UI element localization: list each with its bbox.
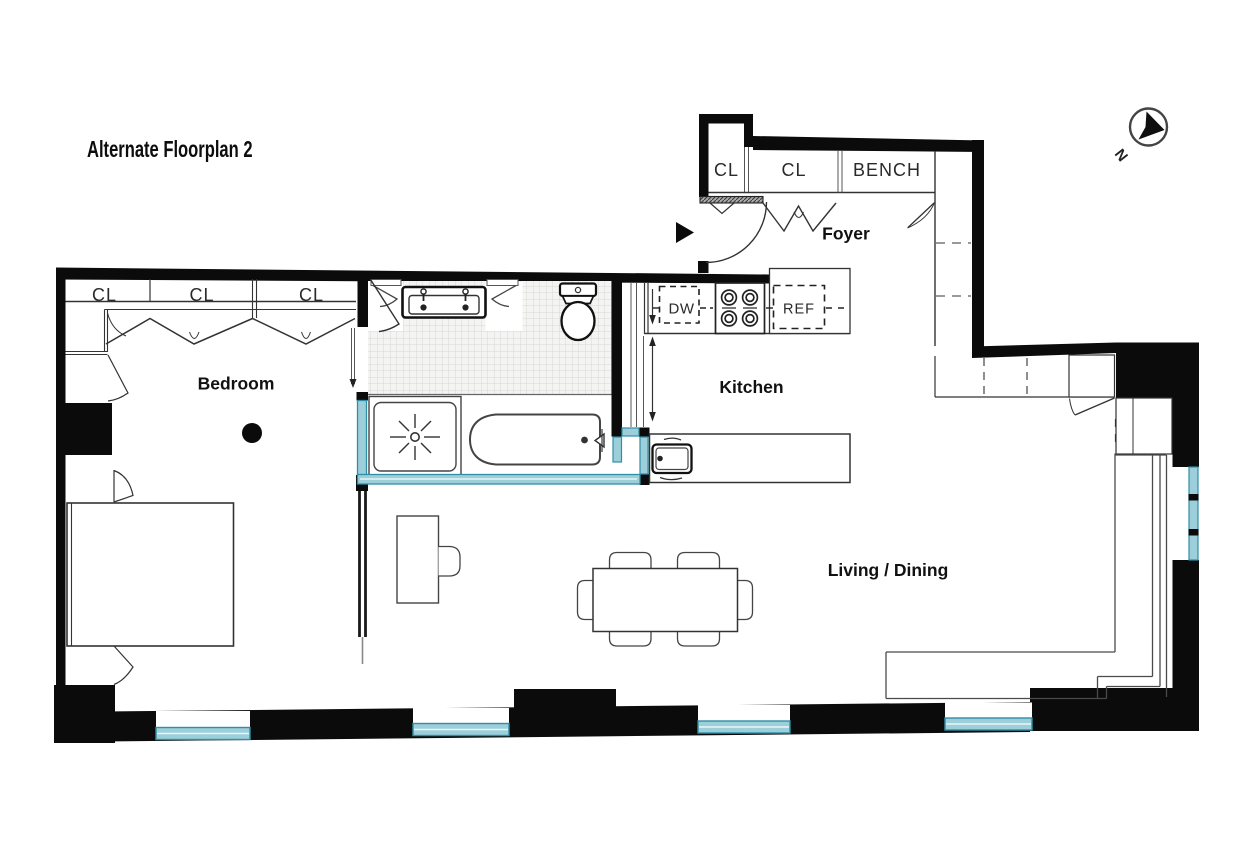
- svg-text:CL: CL: [714, 160, 739, 180]
- svg-text:BENCH: BENCH: [853, 160, 921, 180]
- svg-text:REF: REF: [783, 302, 815, 318]
- svg-text:CL: CL: [299, 285, 324, 305]
- svg-text:CL: CL: [92, 285, 117, 305]
- svg-text:CL: CL: [189, 285, 214, 305]
- svg-text:DW: DW: [669, 301, 695, 318]
- svg-text:CL: CL: [781, 160, 806, 180]
- svg-text:Alternate Floorplan 2: Alternate Floorplan 2: [87, 137, 253, 162]
- svg-text:Bedroom: Bedroom: [198, 374, 275, 394]
- svg-text:Living / Dining: Living / Dining: [828, 560, 949, 580]
- svg-text:Kitchen: Kitchen: [719, 377, 783, 397]
- svg-text:Foyer: Foyer: [822, 224, 870, 244]
